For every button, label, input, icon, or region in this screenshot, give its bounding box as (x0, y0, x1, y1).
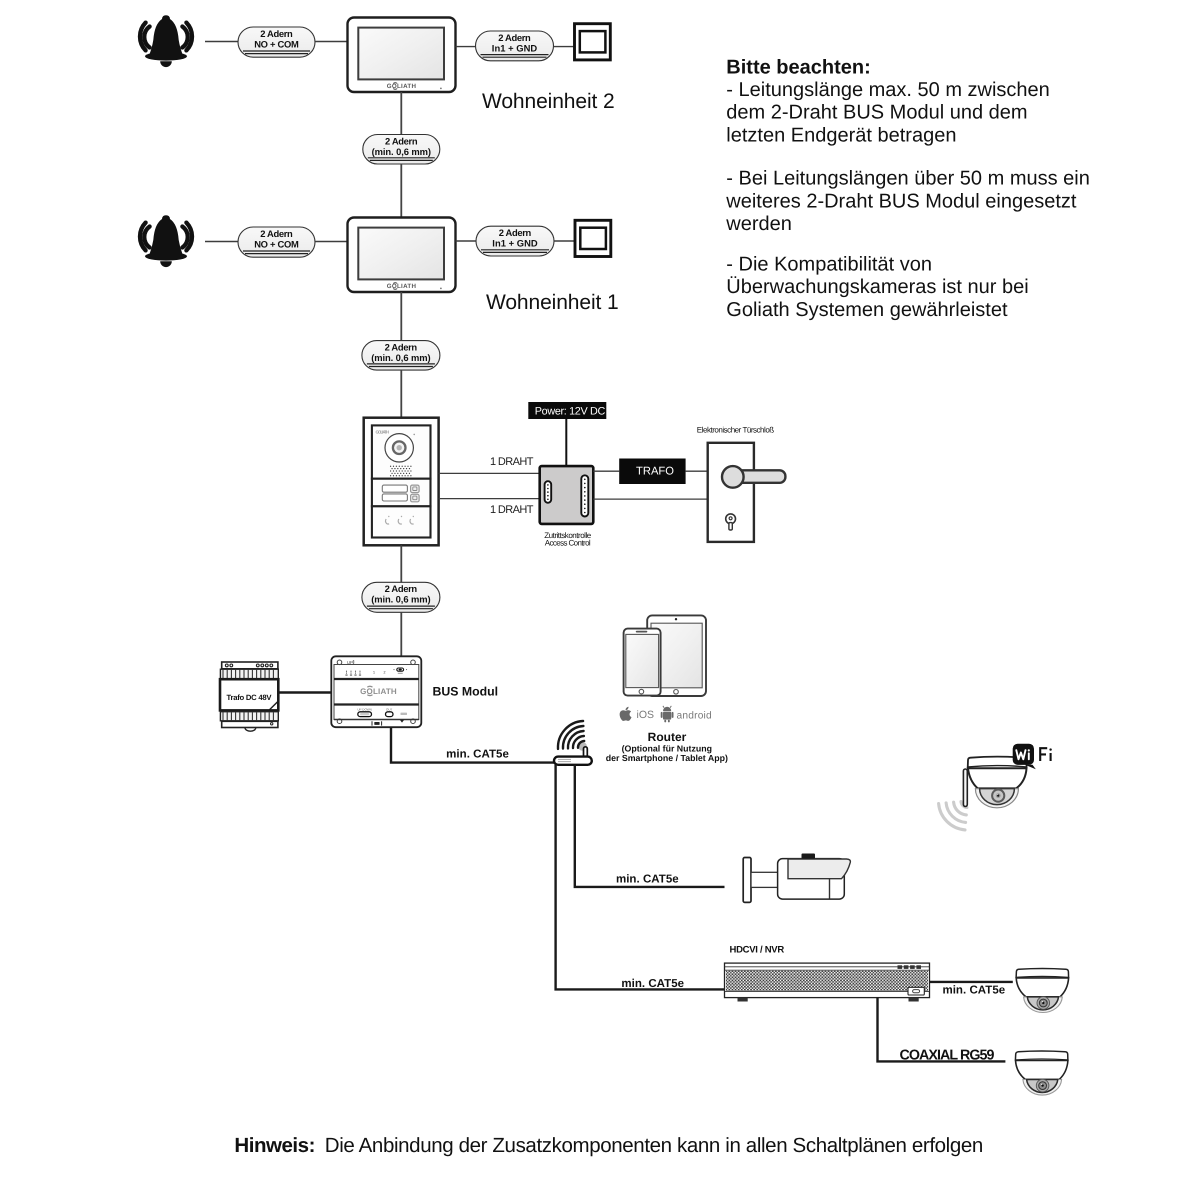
svg-text:GOLIATH: GOLIATH (360, 687, 397, 696)
svg-text:NO + COM: NO + COM (254, 238, 299, 249)
svg-text:OUT: OUT (386, 707, 393, 711)
svg-text:android: android (677, 710, 713, 721)
svg-text:GOLIATH: GOLIATH (387, 283, 417, 290)
svg-text:2 Adern: 2 Adern (385, 342, 418, 353)
svg-text:UP DOWN: UP DOWN (357, 707, 371, 711)
svg-text:- Leitungslänge max. 50 m zwis: - Leitungslänge max. 50 m zwischen (726, 79, 1050, 101)
svg-text:Goliath Systemen gewährleistet: Goliath Systemen gewährleistet (726, 299, 1008, 321)
svg-text:min. CAT5e: min. CAT5e (446, 748, 509, 760)
svg-text:- Die Kompatibilität von: - Die Kompatibilität von (726, 253, 932, 275)
svg-text:Hinweis:: Hinweis: (234, 1134, 315, 1157)
svg-text:der Smartphone / Tablet App): der Smartphone / Tablet App) (606, 753, 728, 763)
svg-text:In1 + GND: In1 + GND (492, 238, 538, 249)
svg-text:1 DRAHT: 1 DRAHT (490, 504, 534, 516)
svg-text:2 Adern: 2 Adern (385, 583, 418, 594)
svg-text:(min. 0,6 mm): (min. 0,6 mm) (372, 146, 431, 157)
svg-text:weiteres 2-Draht BUS Modul ein: weiteres 2-Draht BUS Modul eingesetzt (725, 190, 1077, 212)
svg-text:Router: Router (648, 730, 687, 744)
svg-text:min. CAT5e: min. CAT5e (621, 978, 684, 990)
svg-text:1 DRAHT: 1 DRAHT (490, 456, 534, 468)
svg-text:Wohneinheit 1: Wohneinheit 1 (486, 291, 619, 314)
svg-text:2 Adern: 2 Adern (498, 32, 531, 43)
svg-text:2: 2 (384, 671, 386, 675)
svg-text:In1 + GND: In1 + GND (492, 42, 538, 53)
svg-text:Trafo DC 48V: Trafo DC 48V (227, 693, 273, 702)
svg-text:GOLIATH: GOLIATH (376, 430, 390, 435)
svg-text:Elektronischer Türschloß: Elektronischer Türschloß (697, 425, 775, 434)
svg-text:Bitte beachten:: Bitte beachten: (726, 56, 870, 78)
svg-text:letzten Endgerät betragen: letzten Endgerät betragen (726, 125, 956, 147)
svg-text:2 Adern: 2 Adern (385, 135, 418, 146)
svg-text:Power: 12V DC: Power: 12V DC (535, 405, 606, 417)
svg-text:1: 1 (373, 671, 375, 675)
svg-text:(min. 0,6 mm): (min. 0,6 mm) (371, 352, 430, 363)
svg-text:- Bei Leitungslängen über 50 m: - Bei Leitungslängen über 50 m muss ein (726, 168, 1090, 190)
svg-text:werden: werden (725, 213, 792, 235)
svg-text:BUS Modul: BUS Modul (433, 685, 499, 699)
svg-text:min. CAT5e: min. CAT5e (942, 985, 1005, 997)
svg-text:2 Adern: 2 Adern (260, 28, 293, 39)
svg-text:HDCVI / NVR: HDCVI / NVR (730, 944, 785, 955)
svg-text:Wohneinheit 2: Wohneinheit 2 (482, 90, 615, 113)
svg-text:Access Control: Access Control (545, 539, 591, 548)
svg-text:iOS: iOS (637, 709, 655, 721)
svg-text:2 Adern: 2 Adern (260, 228, 293, 239)
svg-text:NO + COM: NO + COM (254, 38, 299, 49)
svg-text:GOLIATH: GOLIATH (387, 83, 417, 90)
svg-text:min. CAT5e: min. CAT5e (616, 874, 679, 886)
svg-text:(Optional für Nutzung: (Optional für Nutzung (622, 744, 712, 754)
svg-text:TRAFO: TRAFO (636, 465, 674, 477)
svg-text:(min. 0,6 mm): (min. 0,6 mm) (371, 594, 430, 605)
svg-text:COAXIAL RG59: COAXIAL RG59 (900, 1047, 995, 1063)
svg-text:dem 2-Draht BUS Modul und dem: dem 2-Draht BUS Modul und dem (726, 102, 1027, 124)
svg-text:2 Adern: 2 Adern (499, 227, 532, 238)
svg-text:Die Anbindung der Zusatzkompon: Die Anbindung der Zusatzkomponenten kann… (325, 1134, 984, 1157)
svg-text:Überwachungskameras ist nur be: Überwachungskameras ist nur bei (726, 276, 1028, 298)
